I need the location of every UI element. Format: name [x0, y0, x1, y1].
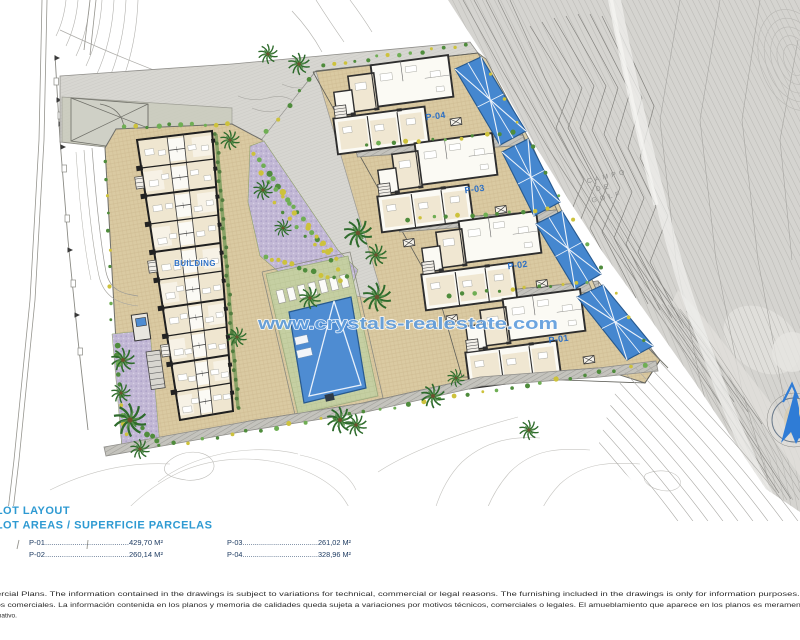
svg-text:ercial Plans. The information: ercial Plans. The information contained …	[0, 591, 800, 598]
svg-text:BUILDING: BUILDING	[174, 259, 216, 268]
svg-text:PLOT LAYOUT: PLOT LAYOUT	[0, 505, 70, 517]
svg-text:P-03..........................: P-03....................................…	[227, 538, 352, 547]
svg-text:os comerciales. La información: os comerciales. La información contenida…	[0, 602, 800, 609]
svg-text:PLOT AREAS / SUPERFICIE PARCEL: PLOT AREAS / SUPERFICIE PARCELAS	[0, 520, 212, 532]
svg-text:P-04..........................: P-04....................................…	[227, 550, 352, 559]
svg-text:P-02..........................: P-02....................................…	[29, 550, 164, 559]
svg-text:P-01..........................: P-01....................................…	[29, 538, 164, 547]
svg-text:www.crystals-realestate.com: www.crystals-realestate.com	[257, 314, 558, 333]
svg-text:mativo.: mativo.	[0, 613, 17, 620]
